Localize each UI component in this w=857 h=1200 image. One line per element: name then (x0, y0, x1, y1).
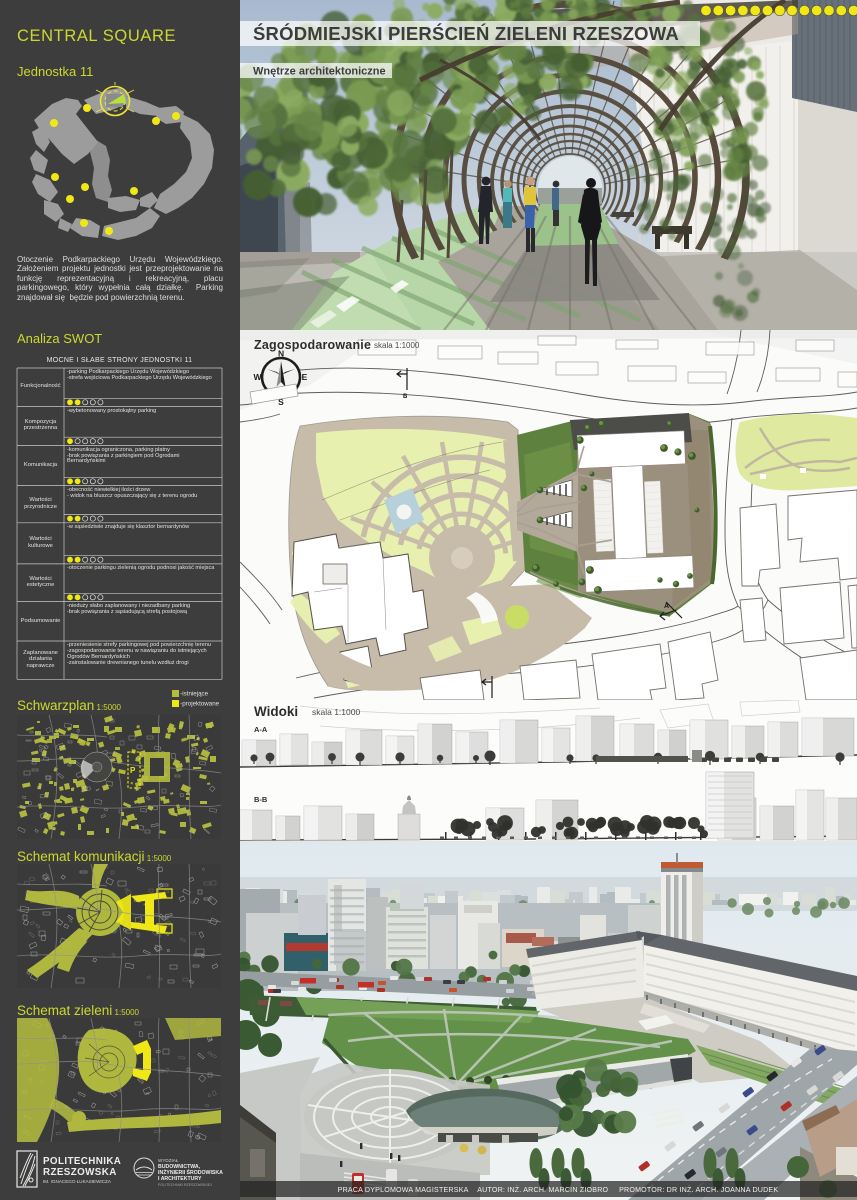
svg-text:ŚRÓDMIEJSKI PIERŚCIEŃ ZIELENI: ŚRÓDMIEJSKI PIERŚCIEŃ ZIELENI RZESZOWA (253, 23, 679, 44)
svg-text:A-A: A-A (254, 725, 268, 734)
svg-text:I ARCHITEKTURY: I ARCHITEKTURY (158, 1176, 202, 1182)
svg-text:skala 1:1000: skala 1:1000 (312, 707, 360, 717)
svg-text:POLITECHNIKA: POLITECHNIKA (43, 1156, 121, 1167)
svg-text:P: P (130, 766, 136, 775)
svg-text:IM. IGNACEGO ŁUKASIEWICZA: IM. IGNACEGO ŁUKASIEWICZA (43, 1179, 112, 1184)
svg-text:Wnętrze architektoniczne: Wnętrze architektoniczne (253, 66, 386, 78)
svg-text:A: A (664, 603, 669, 610)
svg-text:INŻYNIERII ŚRODOWISKA: INŻYNIERII ŚRODOWISKA (158, 1169, 223, 1176)
svg-text:POLITECHNIKI RZESZOWSKIEJ: POLITECHNIKI RZESZOWSKIEJ (158, 1183, 212, 1187)
svg-text:Zagospodarowanie: Zagospodarowanie (254, 338, 371, 352)
svg-text:W: W (253, 372, 262, 382)
svg-text:B: B (403, 394, 408, 400)
svg-text:E: E (302, 372, 308, 382)
svg-text:Widoki: Widoki (254, 704, 298, 719)
svg-text:WYDZIAŁ: WYDZIAŁ (158, 1158, 179, 1163)
svg-text:RZESZOWSKA: RZESZOWSKA (43, 1167, 117, 1178)
svg-text:PRACA DYPLOMOWA MAGISTERSKA: PRACA DYPLOMOWA MAGISTERSKA AUTOR: INŻ. … (338, 1185, 779, 1194)
svg-text:B-B: B-B (254, 795, 268, 804)
svg-text:skala 1:1000: skala 1:1000 (374, 341, 420, 350)
